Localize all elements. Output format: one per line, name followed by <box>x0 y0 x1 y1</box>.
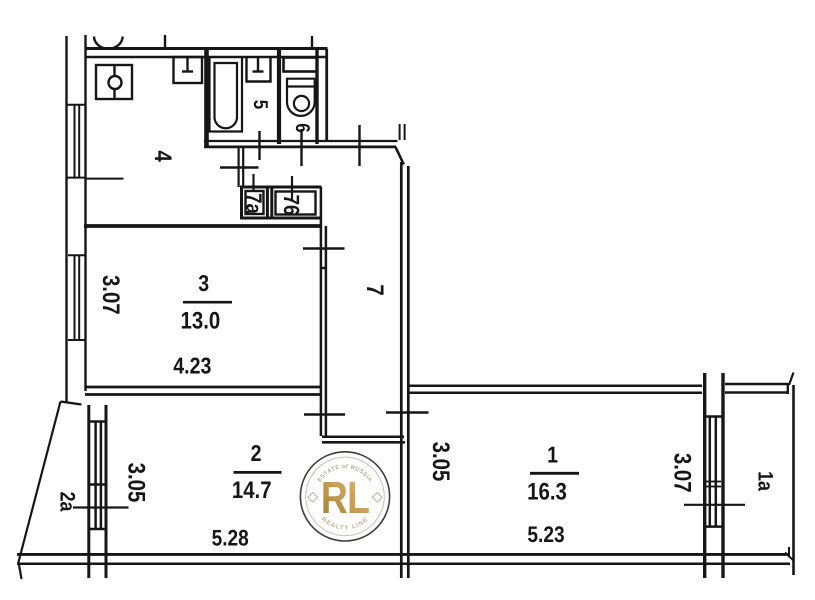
svg-text:6: 6 <box>291 123 313 132</box>
svg-text:5.23: 5.23 <box>527 522 564 547</box>
svg-text:1a: 1a <box>753 471 776 491</box>
svg-text:14.7: 14.7 <box>232 477 272 504</box>
svg-text:1: 1 <box>547 441 558 467</box>
svg-text:13.0: 13.0 <box>181 308 221 335</box>
svg-text:5.28: 5.28 <box>212 526 249 551</box>
svg-text:4: 4 <box>149 151 176 163</box>
svg-text:3.07: 3.07 <box>97 275 124 315</box>
svg-text:2: 2 <box>251 440 262 466</box>
svg-text:4.23: 4.23 <box>173 353 211 379</box>
svg-text:76: 76 <box>279 195 304 216</box>
svg-text:2a: 2a <box>55 492 78 512</box>
svg-text:3.05: 3.05 <box>122 463 149 503</box>
svg-text:7a: 7a <box>241 193 266 214</box>
svg-text:RL: RL <box>321 472 370 523</box>
svg-text:3.05: 3.05 <box>427 442 454 482</box>
svg-text:3: 3 <box>198 270 209 296</box>
svg-text:5: 5 <box>249 100 271 109</box>
svg-text:16.3: 16.3 <box>527 479 567 506</box>
svg-text:3.07: 3.07 <box>668 453 695 493</box>
svg-text:7: 7 <box>361 284 388 295</box>
